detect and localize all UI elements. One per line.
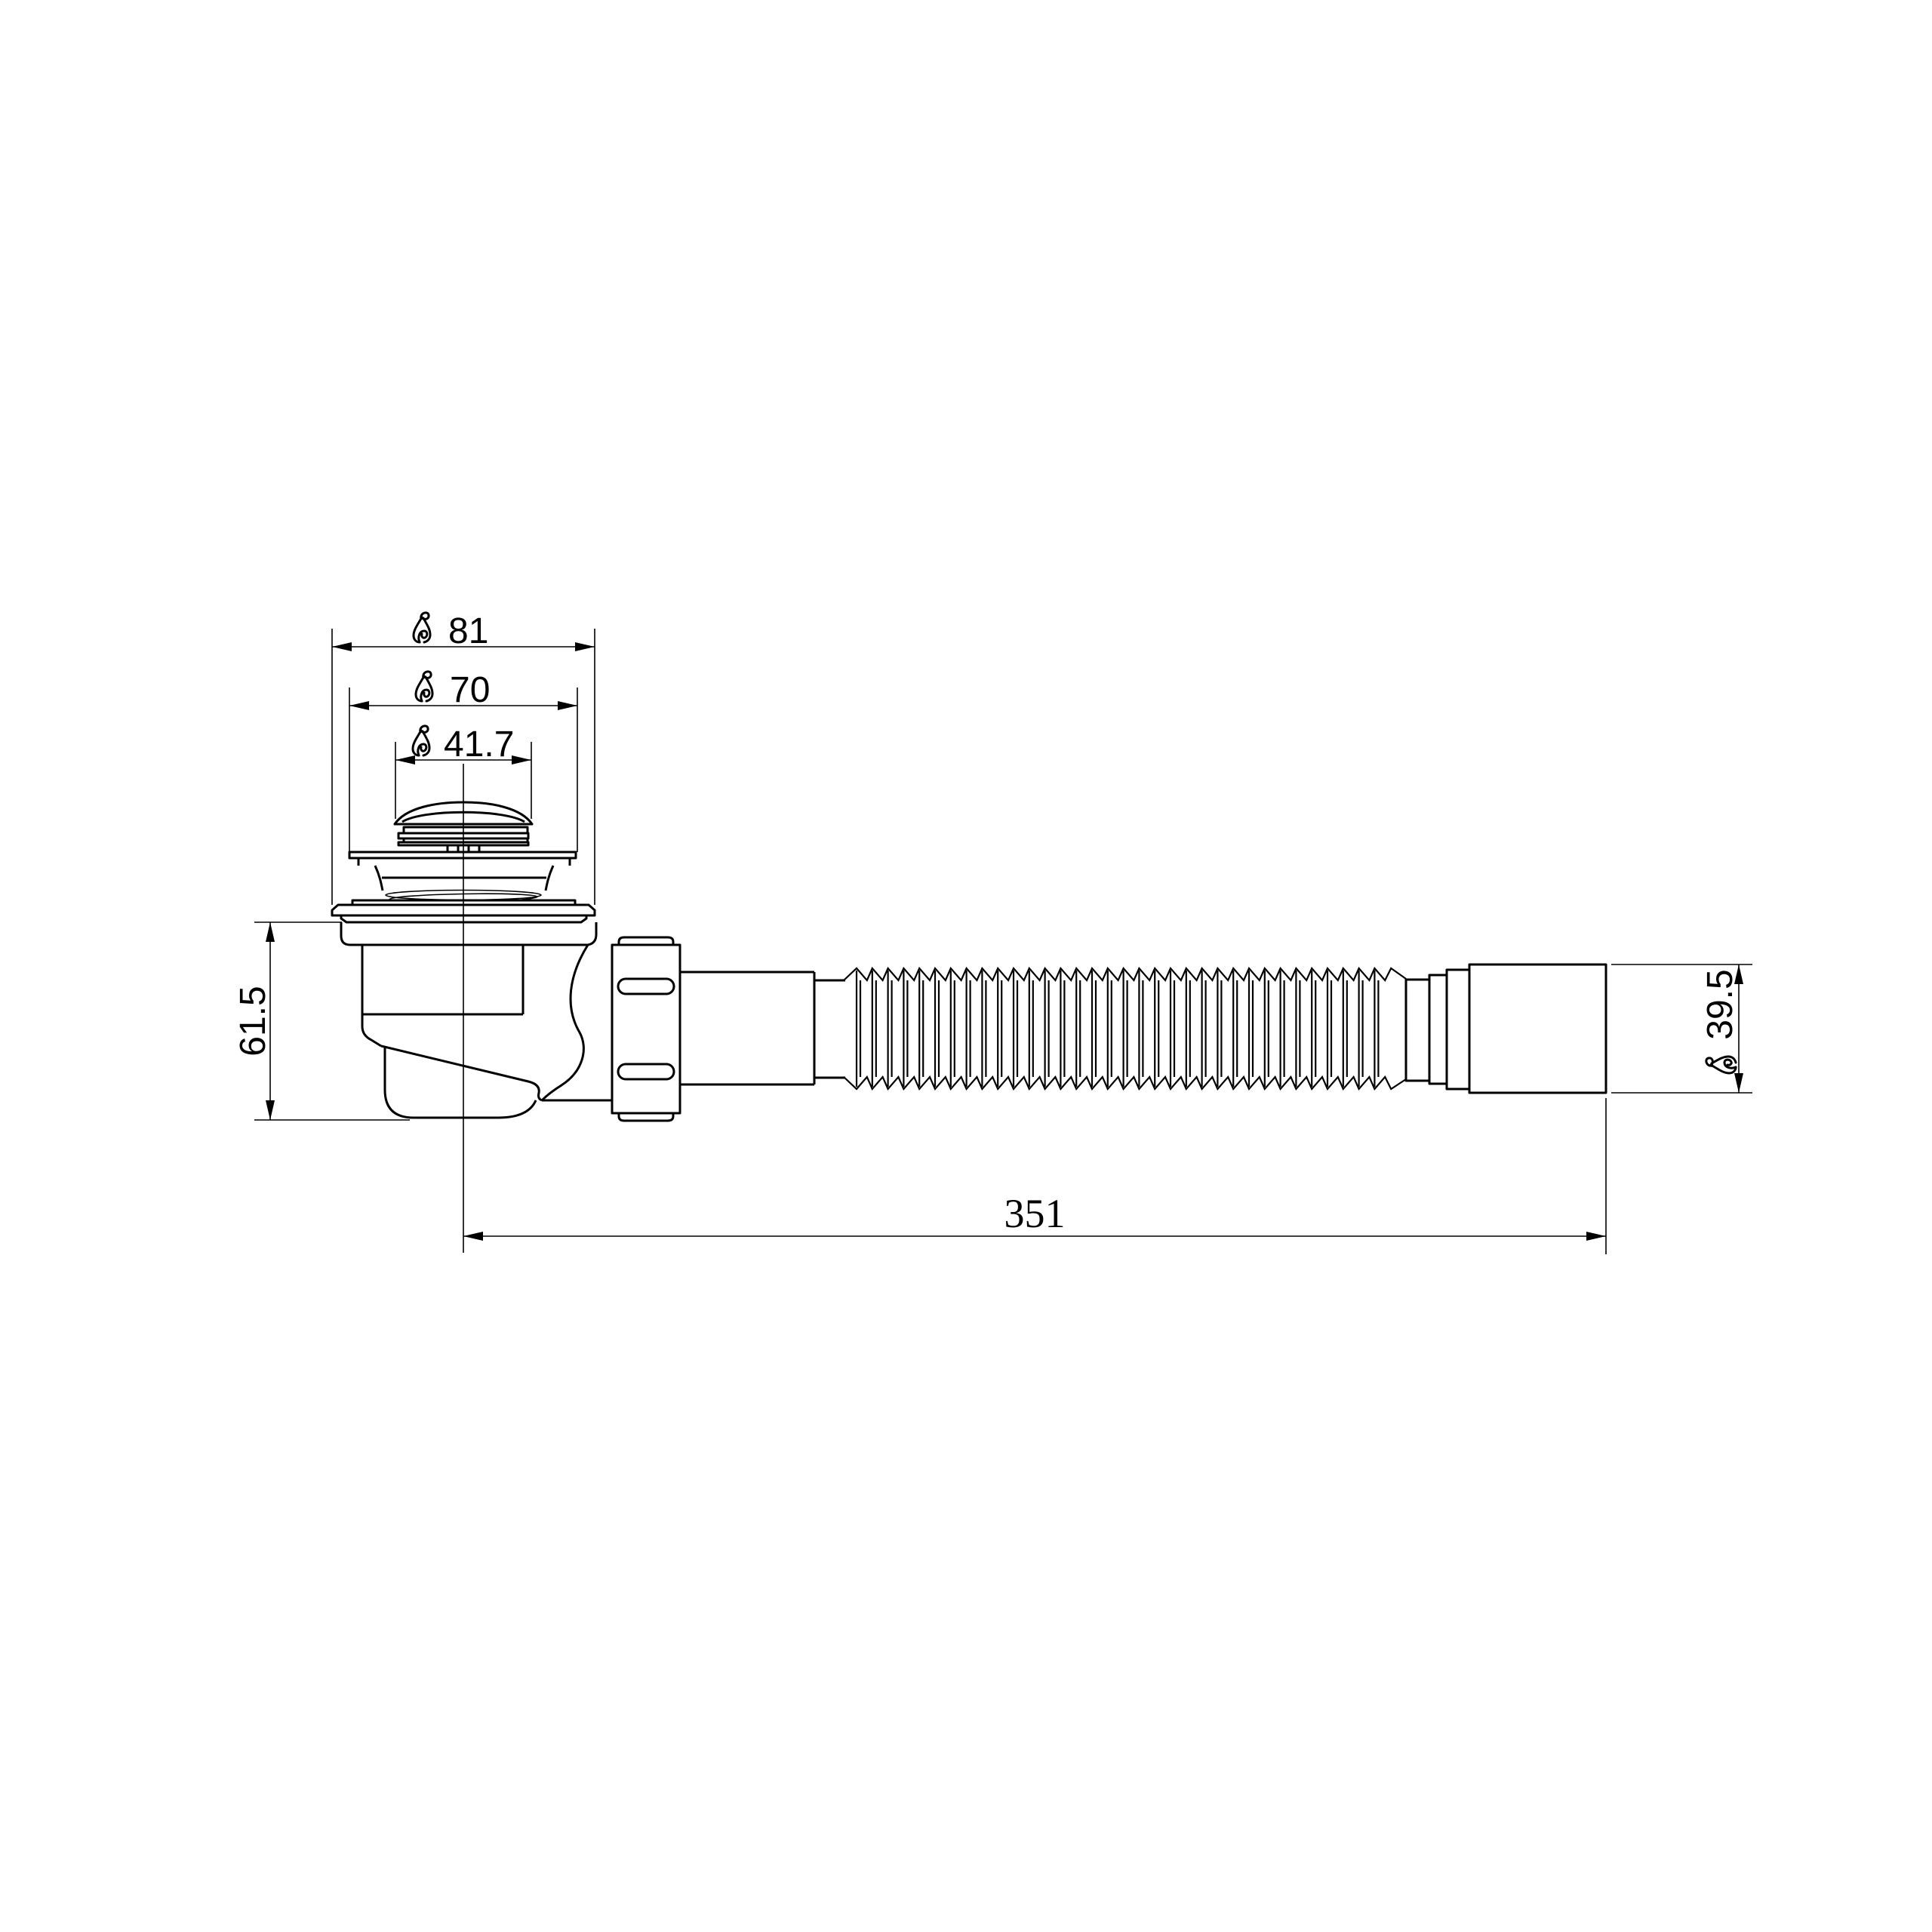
body-cup — [385, 1046, 536, 1118]
technical-drawing: 81 70 41.7 61.5 39.5 — [0, 0, 1932, 1932]
dimension-text: 70 — [450, 670, 490, 710]
arrowhead — [463, 1232, 483, 1241]
nut-slot — [618, 1064, 674, 1079]
body-inner-chamber — [362, 945, 523, 1014]
arrowhead — [349, 701, 369, 710]
hose-corrugation-top-edge — [844, 968, 1406, 980]
extension-line — [254, 922, 410, 1120]
hose-corrugation-ribs — [857, 971, 1378, 1087]
arrowhead — [1586, 1232, 1606, 1241]
dimension-text: 41.7 — [444, 724, 514, 764]
arrowhead — [575, 642, 595, 651]
outlet-pipe — [680, 972, 845, 1084]
flange-bowl — [375, 866, 553, 891]
dimension-text: 351 — [1004, 1191, 1066, 1236]
diameter-symbol-icon — [1706, 1057, 1736, 1073]
arrowhead — [266, 922, 275, 942]
nut-slot — [618, 979, 674, 994]
technical-drawing-page: 81 70 41.7 61.5 39.5 — [0, 0, 1932, 1932]
diameter-symbol-icon — [413, 726, 429, 755]
arrowhead — [332, 642, 352, 651]
body-upper-band — [341, 922, 596, 945]
arrowhead — [1734, 1073, 1743, 1093]
diameter-symbol-icon — [414, 613, 430, 642]
arrowhead — [558, 701, 577, 710]
hose-corrugation-bottom-edge — [844, 1077, 1406, 1089]
dimension-39-5: 39.5 — [1611, 964, 1752, 1093]
body-seal-diagonal — [381, 1046, 542, 1100]
diameter-symbol-icon — [416, 672, 432, 701]
hose-end-rings — [1406, 970, 1469, 1089]
dimension-text: 39.5 — [1700, 969, 1740, 1039]
dimension-text: 81 — [448, 611, 488, 651]
dimension-61-5: 61.5 — [233, 922, 410, 1120]
arrowhead — [266, 1100, 275, 1120]
compression-nut — [612, 937, 680, 1121]
body-outlet-elbow — [542, 945, 588, 1100]
arrowhead — [395, 755, 415, 764]
trap-body — [341, 922, 612, 1118]
corrugated-hose — [844, 968, 1406, 1089]
flange-plate-second — [358, 858, 570, 866]
arrowhead — [512, 755, 531, 764]
dimension-text: 61.5 — [233, 986, 273, 1056]
body-left-step — [362, 1014, 381, 1046]
end-connector — [1469, 964, 1606, 1093]
nut-body — [612, 945, 680, 1113]
